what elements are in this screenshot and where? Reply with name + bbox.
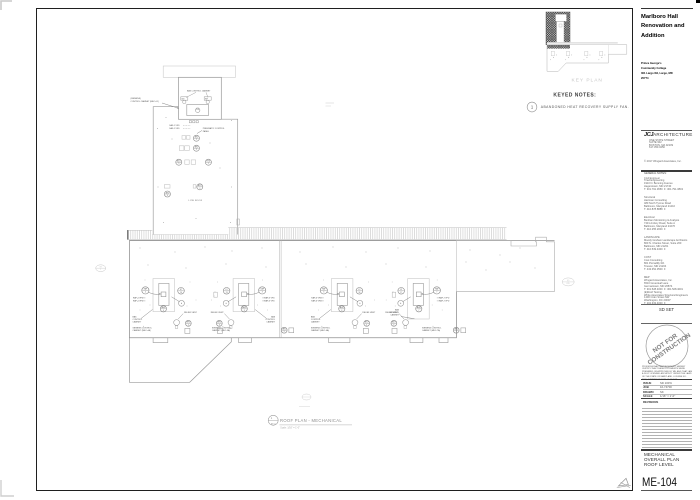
svg-text:BAS CONTROL CABINET: BAS CONTROL CABINET [187,90,211,93]
svg-text:3: 3 [244,310,245,312]
svg-text:6: 6 [167,195,168,197]
svg-text:RAF: RAF [144,288,147,291]
svg-text:2: 2 [196,149,197,151]
svg-text:4: 4 [163,310,164,312]
svg-text:RAF: RAF [261,288,264,291]
svg-text:RAF-7 VFD: RAF-7 VFD [439,297,450,300]
svg-text:DT: DT [180,289,182,291]
svg-text:RAF-6 VFD: RAF-6 VFD [311,300,322,303]
svg-text:6: 6 [323,291,324,293]
svg-text:KEY PLAN: KEY PLAN [572,77,603,83]
svg-text:RAF: RAF [205,97,208,100]
svg-text:RAF-3 VFD: RAF-3 VFD [264,300,275,303]
svg-text:RELIEF VENT: RELIEF VENT [184,312,198,314]
svg-text:KEYED NOTES:: KEYED NOTES: [553,92,596,98]
svg-text:ME104: ME104 [271,423,276,425]
svg-text:RAF: RAF [435,288,438,291]
svg-text:RAF-4 VFD: RAF-4 VFD [133,297,144,300]
svg-text:Scale: 1/16" = 1'-0": Scale: 1/16" = 1'-0" [280,427,300,429]
svg-text:3: 3 [219,324,220,326]
svg-text:RELIEF VENT: RELIEF VENT [211,312,225,314]
svg-text:CABINET (MEC-4A): CABINET (MEC-4A) [133,329,151,332]
svg-text:4: 4 [145,291,146,293]
svg-text:CABINET: CABINET [390,313,399,316]
svg-text:RAF-4 VFD: RAF-4 VFD [133,300,144,303]
svg-text:RTU: RTU [567,283,570,285]
svg-text:7: 7 [456,331,457,333]
svg-text:16: 16 [358,292,360,294]
svg-text:3: 3 [199,188,200,190]
svg-text:BAS: BAS [182,97,185,100]
svg-text:RAF: RAF [322,288,325,291]
svg-text:ROOF PLAN - MECHANICAL: ROOF PLAN - MECHANICAL [280,418,342,423]
svg-text:1: 1 [531,105,534,110]
svg-text:CABINET (MEC-6A): CABINET (MEC-6A) [311,329,329,332]
svg-text:CABINET (MEC-3A): CABINET (MEC-3A) [212,329,230,332]
svg-text:6: 6 [393,324,394,326]
svg-text:RELIEF VENT: RELIEF VENT [362,312,376,314]
svg-text:(SIEMENS): (SIEMENS) [131,98,142,100]
svg-text:3: 3 [262,291,263,293]
svg-text:SAF-1 VFD: SAF-1 VFD [169,127,180,130]
svg-text:PANEL: PANEL [203,130,210,133]
svg-text:1: 1 [196,139,197,141]
svg-text:14: 14 [180,292,182,294]
svg-text:DT: DT [358,289,360,291]
svg-text:RAF-3 VFD: RAF-3 VFD [264,297,275,300]
svg-text:RAF-7 VFD: RAF-7 VFD [439,300,450,303]
svg-text:RAF-6 VFD: RAF-6 VFD [311,297,322,300]
svg-text:CABINET: CABINET [133,320,142,323]
svg-text:13: 13 [226,292,228,294]
svg-text:2: 2 [188,324,189,326]
svg-text:6: 6 [341,310,342,312]
svg-text:DT: DT [400,289,402,291]
svg-text:ABANDONED HEAT RECOVERY SUPPLY: ABANDONED HEAT RECOVERY SUPPLY FAN. [541,105,629,109]
svg-text:CABINET (MEC-7A): CABINET (MEC-7A) [422,329,440,332]
svg-text:1: 1 [100,269,101,271]
svg-text:PNEUMATIC CONTROL: PNEUMATIC CONTROL [203,127,226,130]
svg-text:DT: DT [225,289,227,291]
svg-text:LOW ROOF: LOW ROOF [188,200,202,202]
svg-text:7: 7 [436,291,437,293]
svg-text:SAF-1 VFD: SAF-1 VFD [169,124,180,127]
svg-text:1: 1 [208,163,209,165]
svg-text:EX: EX [100,266,102,268]
svg-text:17: 17 [400,292,402,294]
svg-text:5: 5 [178,163,179,165]
svg-text:4: 4 [366,324,367,326]
svg-text:5: 5 [284,331,285,333]
svg-text:CABINET: CABINET [311,320,320,323]
svg-text:1: 1 [271,416,273,420]
svg-text:CONTROL CABINET (MEC-01): CONTROL CABINET (MEC-01) [131,100,159,103]
svg-text:CABINET: CABINET [266,320,275,323]
svg-text:7: 7 [418,310,419,312]
